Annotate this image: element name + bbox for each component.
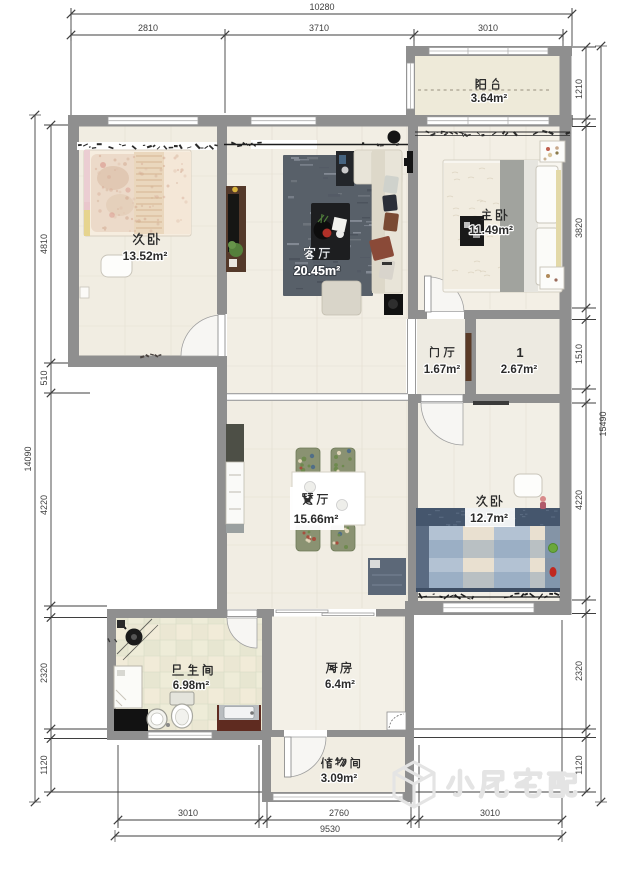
svg-text:6.98m²: 6.98m² xyxy=(173,680,210,692)
svg-text:3.64m²: 3.64m² xyxy=(471,93,508,105)
svg-text:13.52m²: 13.52m² xyxy=(123,249,168,263)
svg-text:14090: 14090 xyxy=(23,446,33,471)
svg-text:6.4m²: 6.4m² xyxy=(325,679,355,691)
svg-text:3010: 3010 xyxy=(480,808,500,818)
svg-text:10280: 10280 xyxy=(309,2,334,12)
svg-text:4220: 4220 xyxy=(39,495,49,515)
svg-text:2760: 2760 xyxy=(329,808,349,818)
svg-text:1: 1 xyxy=(516,345,523,360)
svg-text:3010: 3010 xyxy=(478,23,498,33)
svg-text:1510: 1510 xyxy=(574,344,584,364)
svg-text:15.66m²: 15.66m² xyxy=(294,512,339,526)
svg-text:15490: 15490 xyxy=(598,411,608,436)
svg-text:2320: 2320 xyxy=(39,663,49,683)
svg-text:3820: 3820 xyxy=(574,218,584,238)
svg-text:4220: 4220 xyxy=(574,490,584,510)
svg-text:1210: 1210 xyxy=(574,79,584,99)
svg-text:11.49m²: 11.49m² xyxy=(469,223,513,237)
svg-text:1.67m²: 1.67m² xyxy=(424,364,461,376)
svg-text:510: 510 xyxy=(39,370,49,385)
svg-text:12.7m²: 12.7m² xyxy=(470,511,508,525)
svg-text:20.45m²: 20.45m² xyxy=(294,264,341,278)
svg-text:9530: 9530 xyxy=(320,824,340,834)
svg-text:3710: 3710 xyxy=(309,23,329,33)
svg-text:3.09m²: 3.09m² xyxy=(321,773,358,785)
svg-text:3010: 3010 xyxy=(178,808,198,818)
svg-text:4810: 4810 xyxy=(39,234,49,254)
svg-text:2.67m²: 2.67m² xyxy=(501,364,538,376)
svg-text:2320: 2320 xyxy=(574,661,584,681)
svg-text:1120: 1120 xyxy=(574,755,584,774)
svg-text:1120: 1120 xyxy=(39,755,49,774)
svg-text:2810: 2810 xyxy=(138,23,158,33)
